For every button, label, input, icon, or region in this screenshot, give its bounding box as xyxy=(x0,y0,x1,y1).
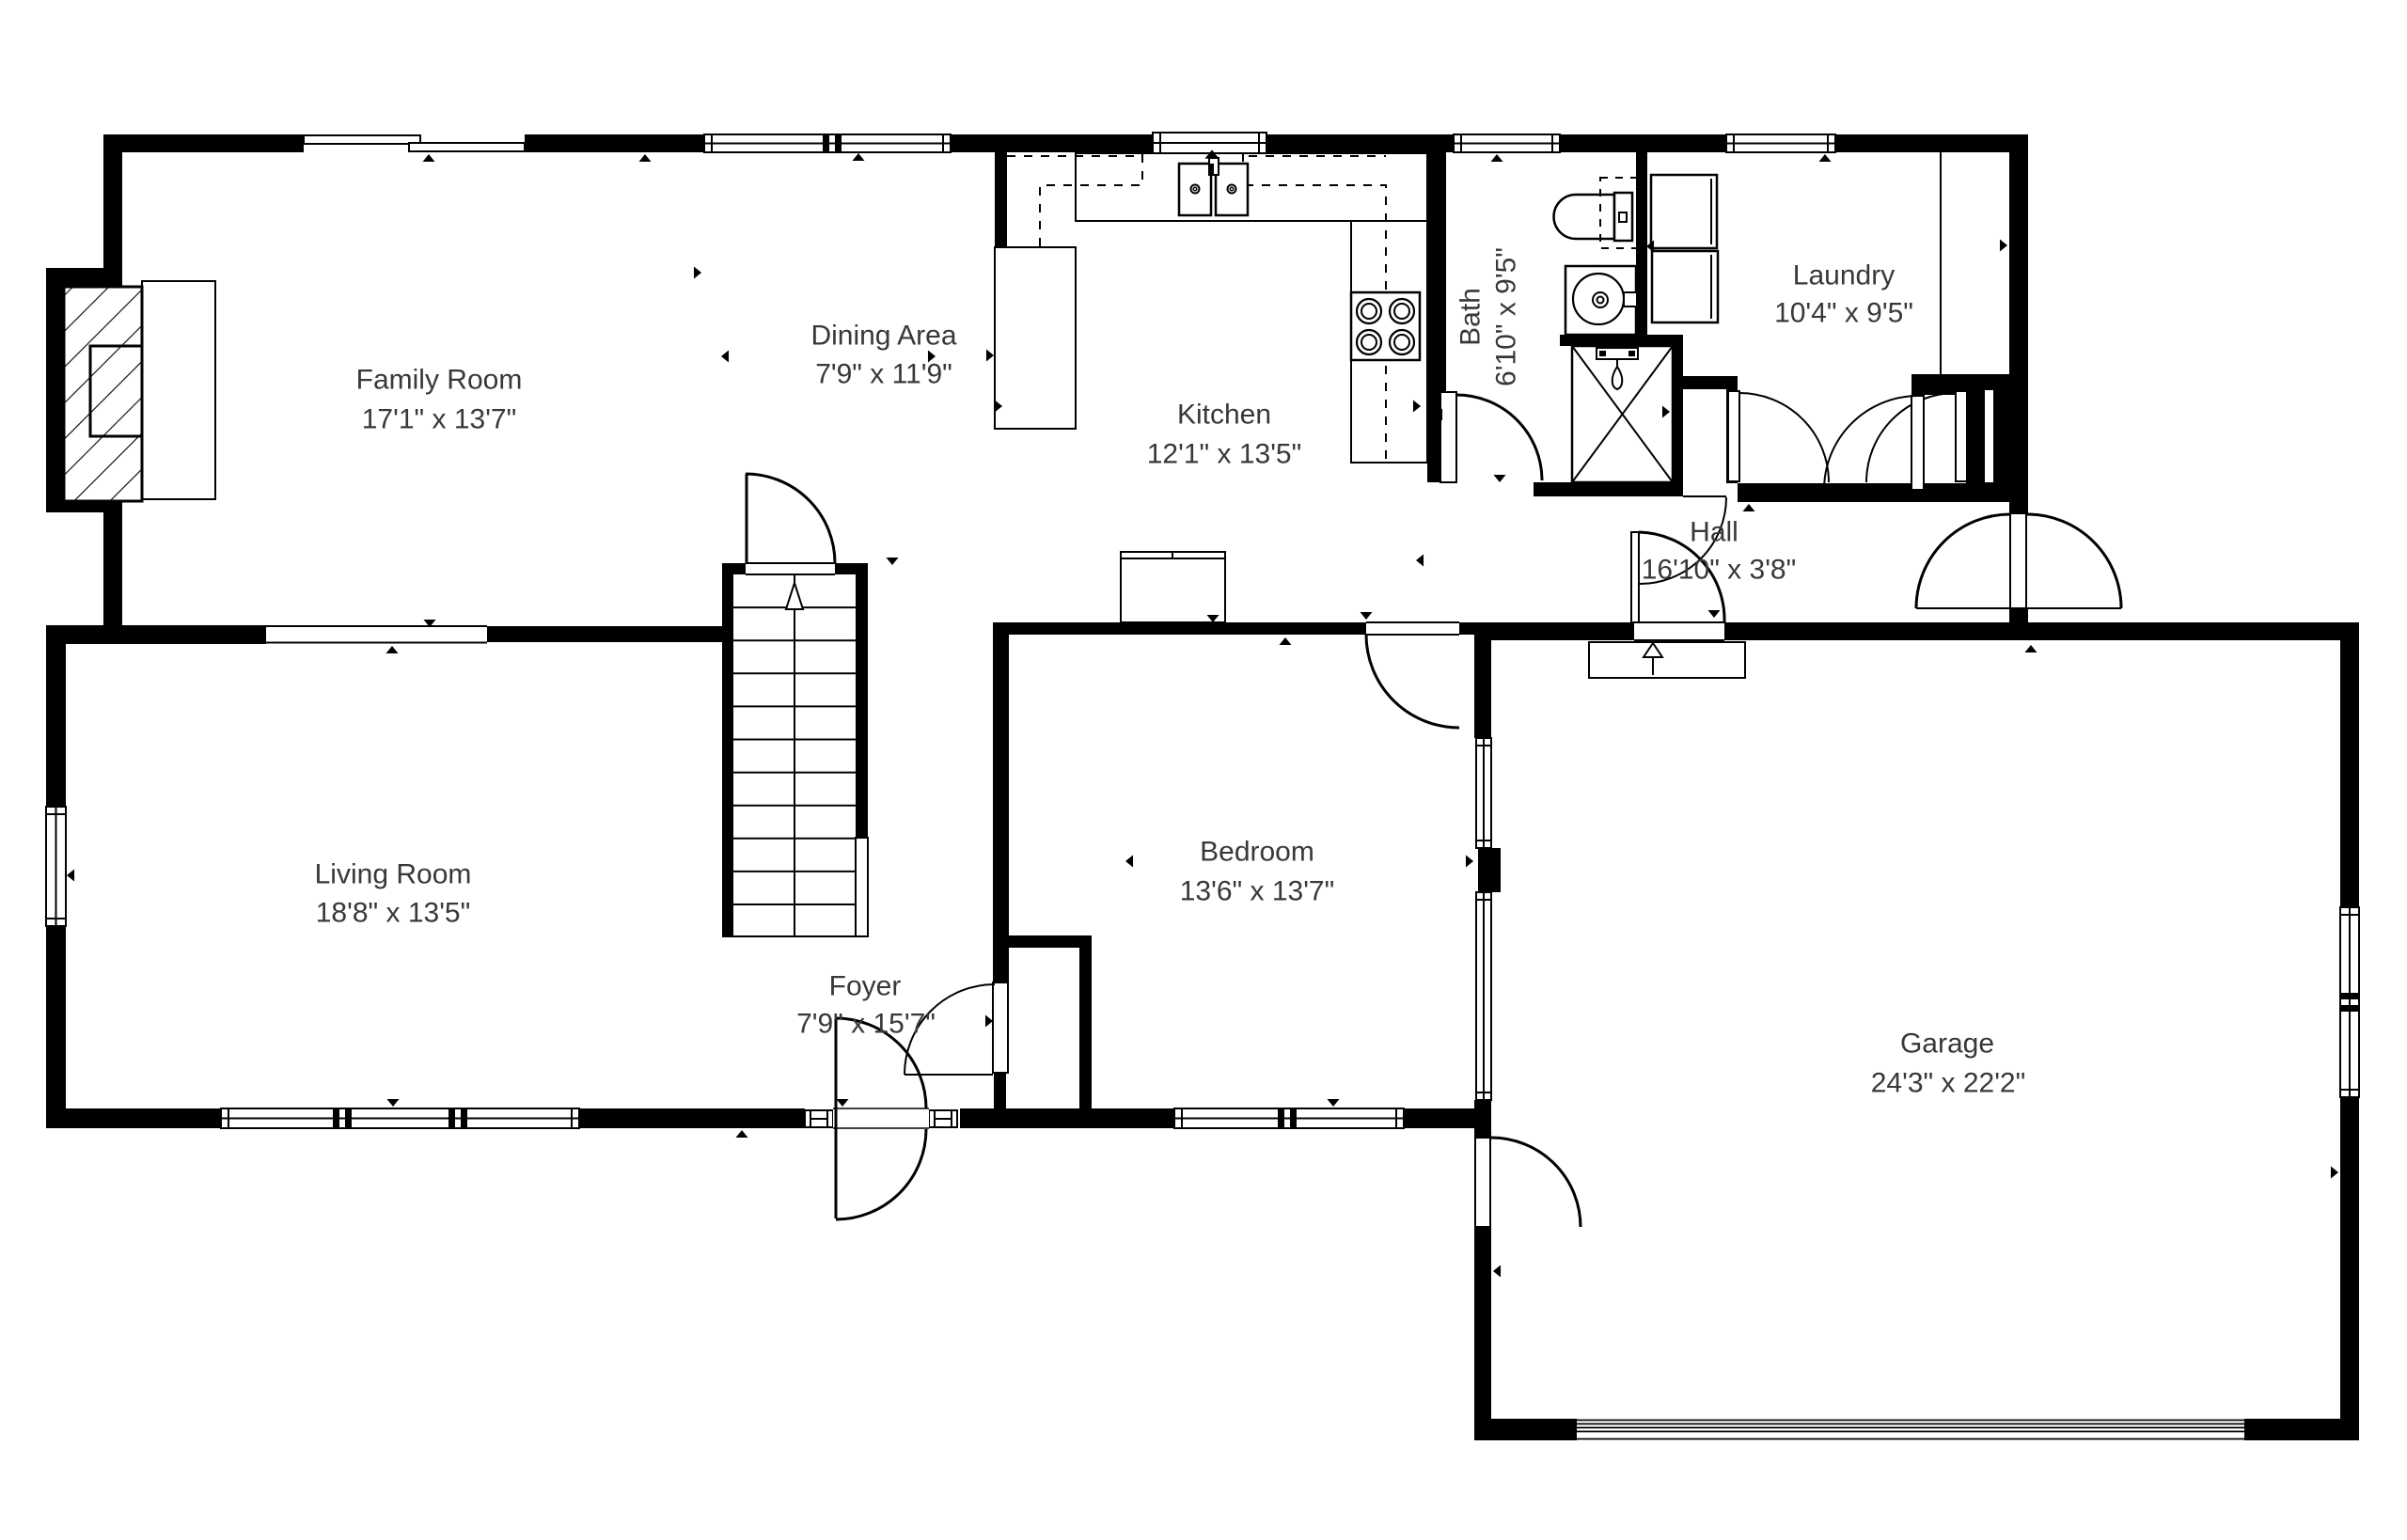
svg-text:10'4" x 9'5": 10'4" x 9'5" xyxy=(1774,298,1913,329)
svg-text:Garage: Garage xyxy=(1900,1029,1994,1060)
svg-text:6'10" x 9'5": 6'10" x 9'5" xyxy=(1491,247,1522,386)
svg-text:17'1" x 13'7": 17'1" x 13'7" xyxy=(362,404,517,435)
svg-text:Bedroom: Bedroom xyxy=(1200,837,1314,868)
svg-text:Bath: Bath xyxy=(1455,288,1487,346)
svg-text:Family Room: Family Room xyxy=(356,365,523,396)
svg-text:7'9" x 15'7": 7'9" x 15'7" xyxy=(796,1009,936,1040)
svg-text:16'10" x 3'8": 16'10" x 3'8" xyxy=(1642,555,1797,586)
svg-text:Living Room: Living Room xyxy=(315,859,472,890)
svg-text:18'8" x 13'5": 18'8" x 13'5" xyxy=(316,898,471,929)
svg-text:7'9" x 11'9": 7'9" x 11'9" xyxy=(815,359,952,390)
svg-text:24'3" x 22'2": 24'3" x 22'2" xyxy=(1871,1068,2026,1099)
svg-text:Kitchen: Kitchen xyxy=(1177,400,1271,431)
svg-text:Foyer: Foyer xyxy=(829,971,902,1002)
svg-text:Dining Area: Dining Area xyxy=(810,321,956,352)
svg-text:Hall: Hall xyxy=(1690,517,1738,548)
svg-text:12'1" x 13'5": 12'1" x 13'5" xyxy=(1147,439,1302,470)
svg-text:Laundry: Laundry xyxy=(1793,260,1895,291)
svg-text:13'6" x 13'7": 13'6" x 13'7" xyxy=(1180,876,1335,907)
